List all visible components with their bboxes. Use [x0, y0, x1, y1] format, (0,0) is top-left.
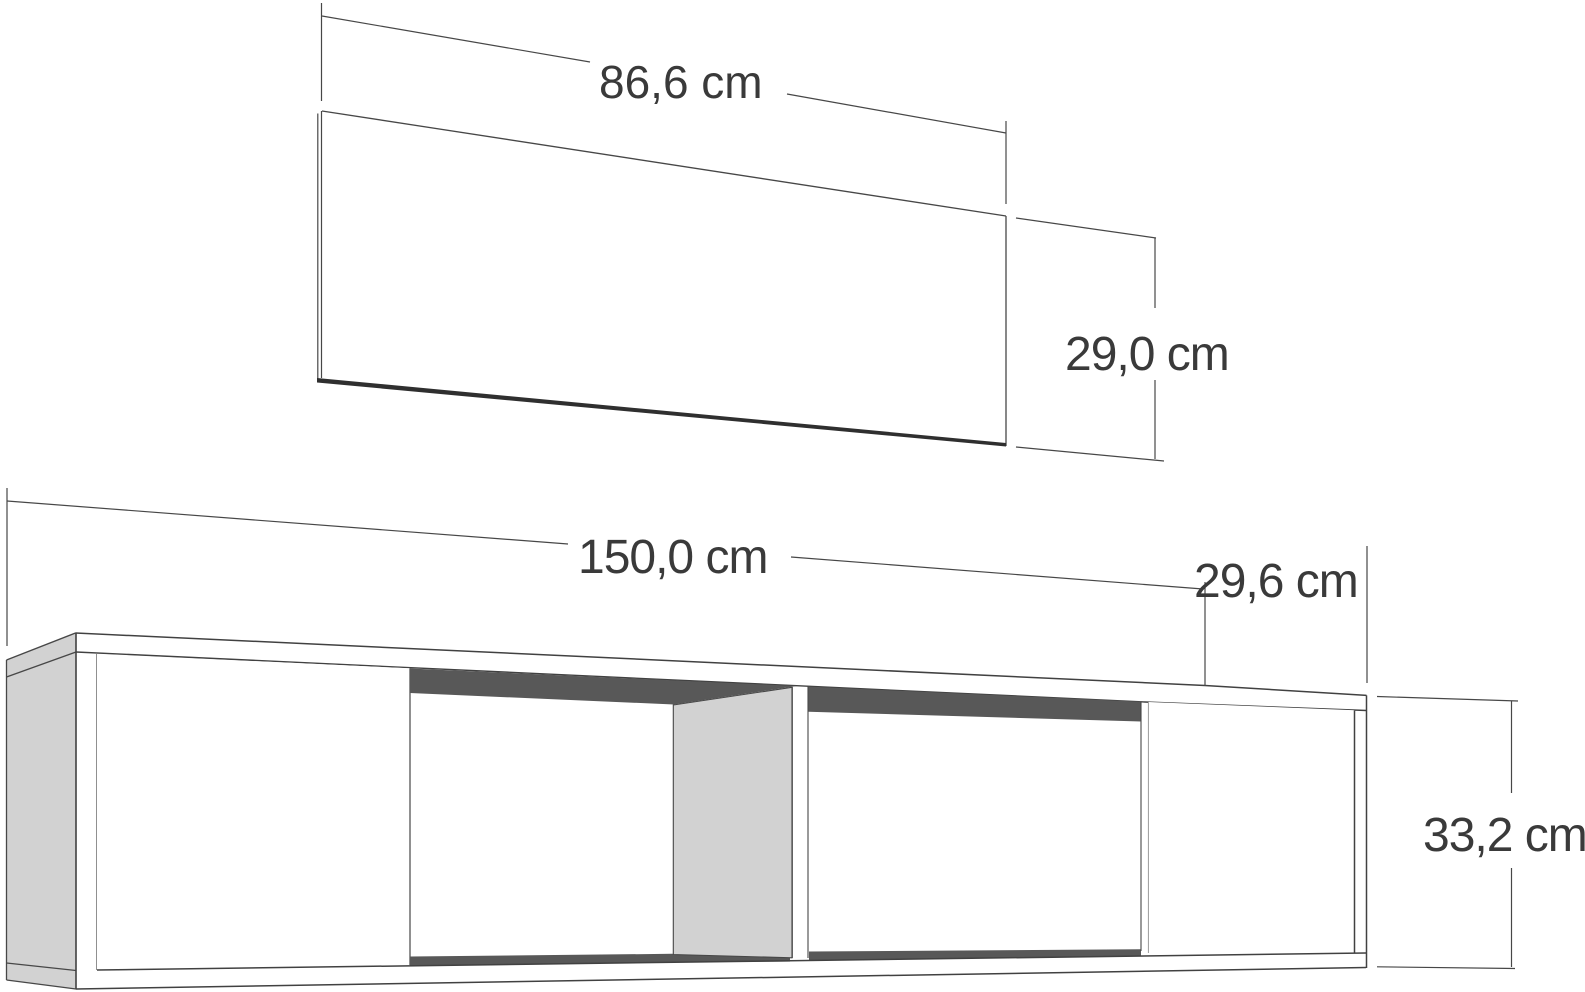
svg-text:86,6 cm: 86,6 cm — [599, 56, 763, 108]
svg-text:29,0 cm: 29,0 cm — [1065, 328, 1229, 381]
svg-text:29,6 cm: 29,6 cm — [1194, 555, 1358, 608]
svg-text:33,2 cm: 33,2 cm — [1423, 809, 1585, 862]
svg-text:150,0 cm: 150,0 cm — [578, 531, 767, 584]
